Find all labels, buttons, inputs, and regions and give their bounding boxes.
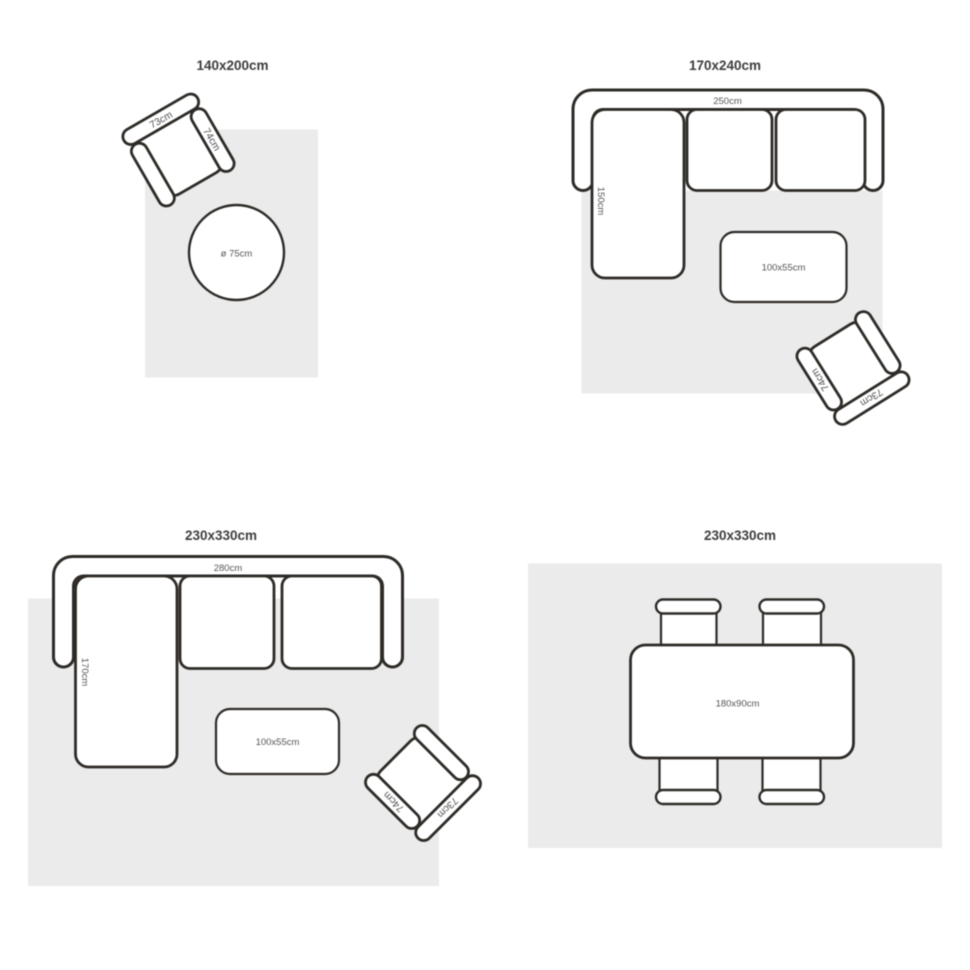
svg-text:180x90cm: 180x90cm [716, 699, 760, 710]
svg-text:230x330cm: 230x330cm [185, 528, 257, 543]
svg-text:170x240cm: 170x240cm [689, 58, 761, 73]
svg-text:100x55cm: 100x55cm [256, 737, 300, 748]
svg-text:170cm: 170cm [79, 658, 90, 687]
svg-text:230x330cm: 230x330cm [704, 528, 776, 543]
svg-text:100x55cm: 100x55cm [762, 263, 806, 274]
svg-text:280cm: 280cm [214, 563, 243, 574]
svg-text:150cm: 150cm [595, 187, 606, 216]
svg-text:ø 75cm: ø 75cm [221, 248, 253, 259]
svg-text:250cm: 250cm [713, 96, 742, 107]
svg-text:140x200cm: 140x200cm [196, 58, 268, 73]
